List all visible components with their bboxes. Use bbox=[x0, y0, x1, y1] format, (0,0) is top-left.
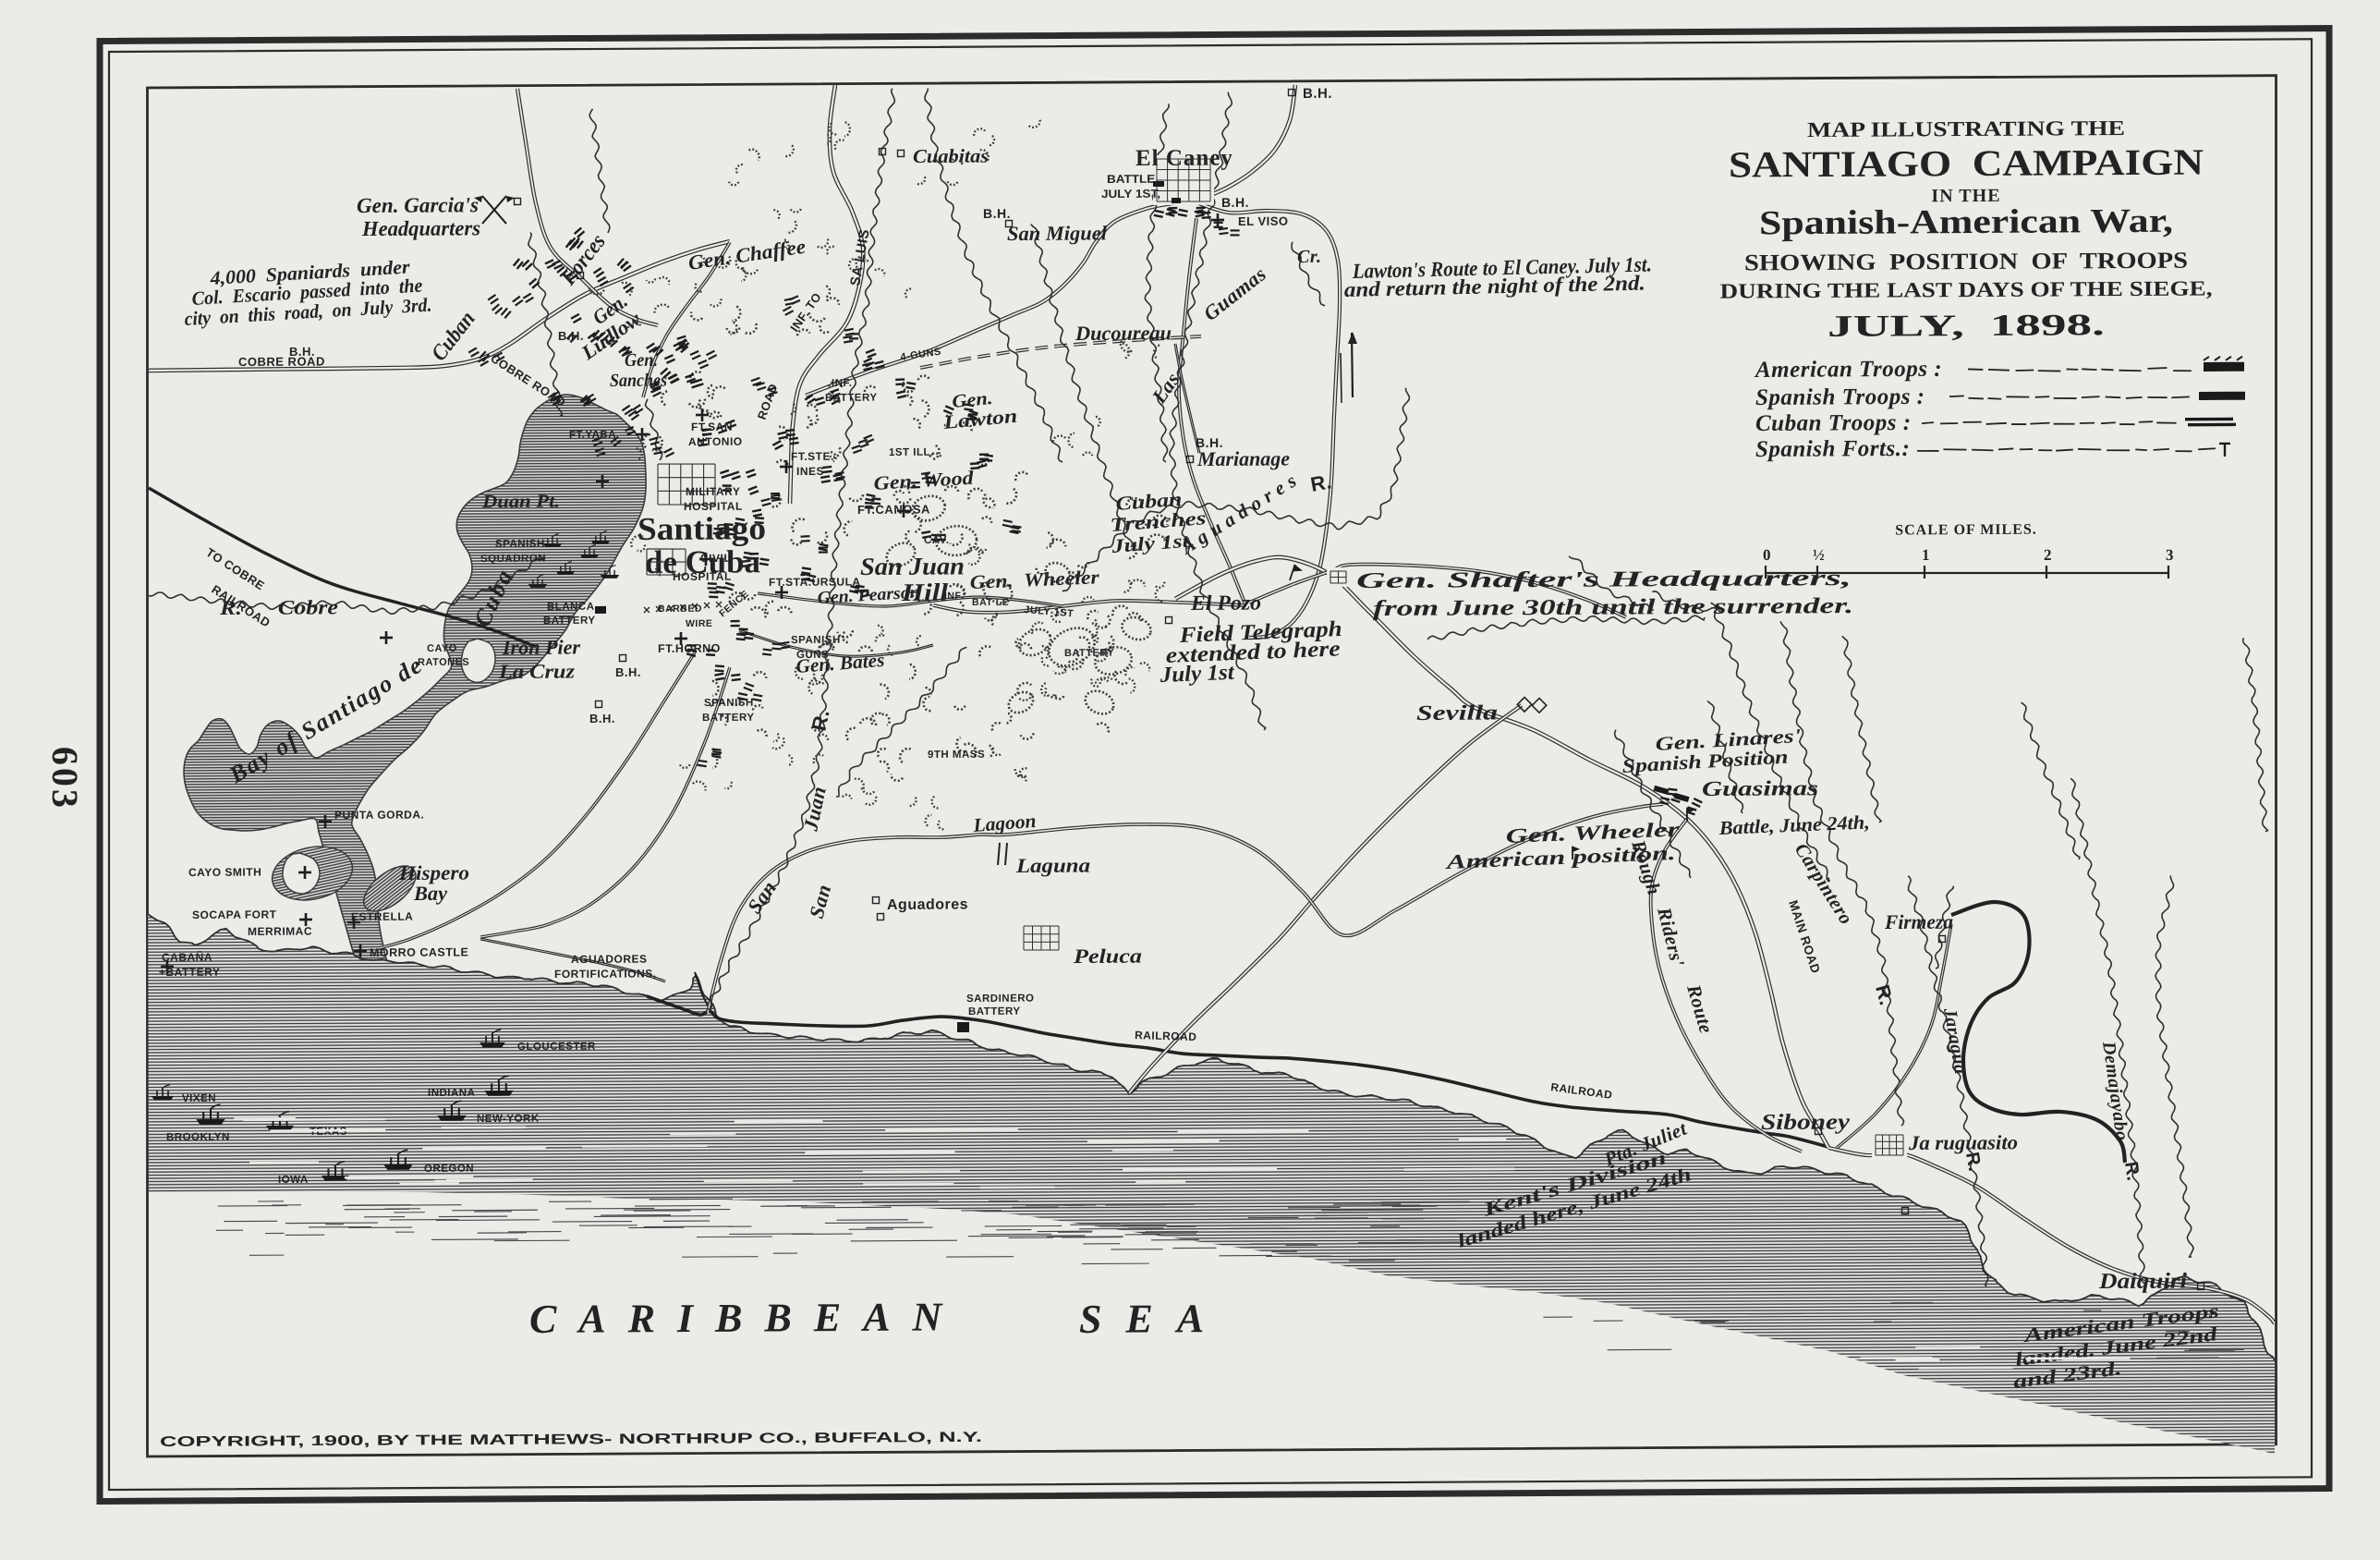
svg-text:ESTRELLA: ESTRELLA bbox=[351, 910, 413, 923]
svg-text:Peluca: Peluca bbox=[1073, 945, 1142, 968]
svg-text:Daiquiri: Daiquiri bbox=[2098, 1269, 2187, 1294]
svg-text:Headquarters: Headquarters bbox=[361, 216, 480, 240]
svg-text:CAYO: CAYO bbox=[427, 643, 457, 654]
svg-text:from June 30th until the surre: from June 30th until the surrender. bbox=[1373, 594, 1853, 621]
svg-text:+BATTERY: +BATTERY bbox=[159, 966, 220, 979]
svg-text:BATTERY: BATTERY bbox=[968, 1006, 1021, 1018]
svg-text:San Miguel: San Miguel bbox=[1007, 221, 1108, 245]
svg-text:ANTONIO: ANTONIO bbox=[688, 435, 743, 448]
svg-text:SPANISH: SPANISH bbox=[791, 635, 841, 646]
svg-text:Aguadores: Aguadores bbox=[887, 896, 968, 913]
svg-text:Siboney: Siboney bbox=[1761, 1110, 1850, 1135]
svg-text:Spanish-American War,: Spanish-American War, bbox=[1759, 202, 2173, 243]
svg-text:Cr.: Cr. bbox=[1297, 247, 1322, 267]
svg-text:Ducoureau: Ducoureau bbox=[1075, 321, 1172, 345]
svg-text:B.H.: B.H. bbox=[558, 329, 584, 343]
svg-text:1: 1 bbox=[1922, 546, 1930, 564]
svg-text:CABAÑA: CABAÑA bbox=[162, 950, 212, 964]
svg-text:B.H.: B.H. bbox=[983, 206, 1011, 221]
svg-text:NEW-YORK: NEW-YORK bbox=[477, 1114, 540, 1125]
svg-text:Ja ruguasito: Ja ruguasito bbox=[1908, 1130, 2018, 1154]
svg-text:INF: INF bbox=[944, 591, 961, 602]
svg-text:DURING THE LAST DAYS OF THE SI: DURING THE LAST DAYS OF THE SIEGE, bbox=[1720, 277, 2213, 303]
svg-text:BATTERY: BATTERY bbox=[543, 615, 596, 627]
svg-text:BATTERY: BATTERY bbox=[825, 393, 878, 404]
svg-text:603: 603 bbox=[44, 747, 86, 810]
svg-text:R.: R. bbox=[1309, 469, 1334, 496]
svg-text:Gen. Shafter's Headquarters,: Gen. Shafter's Headquarters, bbox=[1356, 567, 1852, 593]
svg-text:WIRE: WIRE bbox=[686, 618, 712, 629]
svg-text:INES: INES bbox=[796, 465, 824, 478]
svg-text:HOSPITAL: HOSPITAL bbox=[673, 570, 732, 583]
svg-text:B.H.: B.H. bbox=[289, 345, 315, 359]
svg-text:B.H.: B.H. bbox=[1303, 86, 1332, 102]
svg-text:B.H.: B.H. bbox=[589, 712, 615, 725]
svg-text:Guasimas: Guasimas bbox=[1702, 776, 1818, 800]
svg-text:½: ½ bbox=[1813, 546, 1825, 564]
svg-text:IOWA: IOWA bbox=[278, 1175, 309, 1186]
svg-text:R. Cobre: R. Cobre bbox=[219, 595, 338, 619]
svg-text:OREGON: OREGON bbox=[424, 1164, 474, 1175]
svg-text:0: 0 bbox=[1763, 546, 1771, 564]
svg-text:American Troops :: American Troops : bbox=[1754, 357, 1942, 383]
svg-text:AGUADORES: AGUADORES bbox=[571, 953, 648, 966]
svg-text:2: 2 bbox=[2044, 546, 2052, 564]
svg-text:SQUADRON: SQUADRON bbox=[480, 554, 546, 565]
svg-text:SCALE OF MILES.: SCALE OF MILES. bbox=[1895, 522, 2037, 539]
svg-text:MAP ILLUSTRATING THE: MAP ILLUSTRATING THE bbox=[1807, 116, 2125, 141]
svg-text:SHOWING POSITION OF TROOPS: SHOWING POSITION OF TROOPS bbox=[1744, 249, 2188, 276]
svg-text:Spanish Forts.:: Spanish Forts.: bbox=[1755, 436, 1910, 462]
svg-text:Cuabitas: Cuabitas bbox=[913, 145, 989, 167]
svg-text:RATONES: RATONES bbox=[418, 657, 469, 668]
svg-text:EL VISO: EL VISO bbox=[1238, 214, 1289, 228]
svg-text:PUNTA GORDA.: PUNTA GORDA. bbox=[334, 808, 424, 822]
svg-text:Laguna: Laguna bbox=[1015, 854, 1090, 877]
svg-text:B.H.: B.H. bbox=[1221, 195, 1249, 210]
svg-text:SOCAPA FORT: SOCAPA FORT bbox=[192, 908, 277, 921]
svg-text:Sevilla: Sevilla bbox=[1416, 701, 1498, 725]
svg-text:La Cruz: La Cruz bbox=[498, 660, 576, 683]
svg-text:GLOUCESTER: GLOUCESTER bbox=[517, 1041, 596, 1052]
svg-text:B.H.: B.H. bbox=[615, 665, 641, 679]
svg-text:FT.CANOSA: FT.CANOSA bbox=[857, 503, 930, 517]
svg-text:SANTIAGO CAMPAIGN: SANTIAGO CAMPAIGN bbox=[1729, 141, 2204, 186]
svg-text:BATTLE,: BATTLE, bbox=[1107, 173, 1159, 186]
svg-text:Bay: Bay bbox=[413, 882, 447, 905]
svg-text:MERRIMAC: MERRIMAC bbox=[248, 925, 312, 938]
svg-text:Santiago: Santiago bbox=[637, 510, 766, 547]
svg-text:CARIBBEAN: CARIBBEAN bbox=[529, 1294, 964, 1342]
svg-text:CIVIL: CIVIL bbox=[700, 552, 731, 565]
svg-text:Cuban Troops :: Cuban Troops : bbox=[1755, 410, 1912, 436]
svg-text:MORRO CASTLE: MORRO CASTLE bbox=[370, 945, 468, 959]
svg-text:INDIANA: INDIANA bbox=[428, 1088, 475, 1099]
svg-text:FT.SAN: FT.SAN bbox=[691, 420, 733, 433]
svg-text:FORTIFICATIONS,: FORTIFICATIONS, bbox=[554, 967, 657, 981]
svg-text:San Juan: San Juan bbox=[860, 552, 965, 580]
svg-text:Gen. Garcia's: Gen. Garcia's bbox=[357, 193, 479, 217]
svg-text:Gen.: Gen. bbox=[625, 350, 658, 371]
svg-text:BROOKLYN: BROOKLYN bbox=[166, 1132, 230, 1143]
svg-text:Marianage: Marianage bbox=[1196, 446, 1290, 470]
svg-text:El Caney: El Caney bbox=[1135, 145, 1233, 171]
svg-text:SARDINERO: SARDINERO bbox=[966, 993, 1035, 1005]
svg-text:INF.: INF. bbox=[832, 378, 852, 389]
svg-text:VIXEN: VIXEN bbox=[182, 1093, 216, 1104]
svg-text:July 1st: July 1st bbox=[1159, 661, 1235, 688]
svg-text:1ST ILL.: 1ST ILL. bbox=[889, 447, 934, 458]
svg-text:JULY 1ST,: JULY 1ST, bbox=[1101, 188, 1160, 201]
svg-text:Spanish Troops :: Spanish Troops : bbox=[1755, 384, 1925, 410]
svg-text:JULY, 1898.: JULY, 1898. bbox=[1827, 309, 2105, 344]
svg-text:FT.STE.: FT.STE. bbox=[791, 450, 834, 463]
svg-text:Duan Pt.: Duan Pt. bbox=[481, 492, 560, 512]
svg-text:HOSPITAL: HOSPITAL bbox=[684, 500, 743, 513]
svg-text:R.: R. bbox=[2120, 1160, 2143, 1182]
svg-text:El Pozo: El Pozo bbox=[1190, 591, 1261, 615]
svg-text:CAYO SMITH: CAYO SMITH bbox=[188, 866, 261, 879]
svg-text:Iron Pier: Iron Pier bbox=[502, 635, 580, 658]
svg-text:CAV.: CAV. bbox=[924, 535, 950, 546]
svg-text:SPANISH: SPANISH bbox=[495, 539, 545, 550]
svg-text:FT.HORNO: FT.HORNO bbox=[658, 642, 721, 655]
svg-text:BATTERY: BATTERY bbox=[702, 713, 755, 724]
svg-text:3: 3 bbox=[2166, 546, 2174, 564]
svg-text:RAILROAD: RAILROAD bbox=[1135, 1029, 1197, 1043]
svg-text:BARBED: BARBED bbox=[658, 603, 702, 615]
svg-text:BLANCA: BLANCA bbox=[547, 602, 595, 613]
svg-text:SEA: SEA bbox=[1079, 1296, 1228, 1342]
svg-text:MILITARY: MILITARY bbox=[686, 485, 740, 498]
svg-text:R.: R. bbox=[1961, 1151, 1985, 1174]
svg-text:Firmeza: Firmeza bbox=[1884, 910, 1953, 933]
svg-text:TEXAS: TEXAS bbox=[310, 1127, 347, 1138]
svg-text:9TH MASS: 9TH MASS bbox=[928, 750, 985, 761]
svg-text:FT.YABA: FT.YABA bbox=[569, 430, 616, 441]
